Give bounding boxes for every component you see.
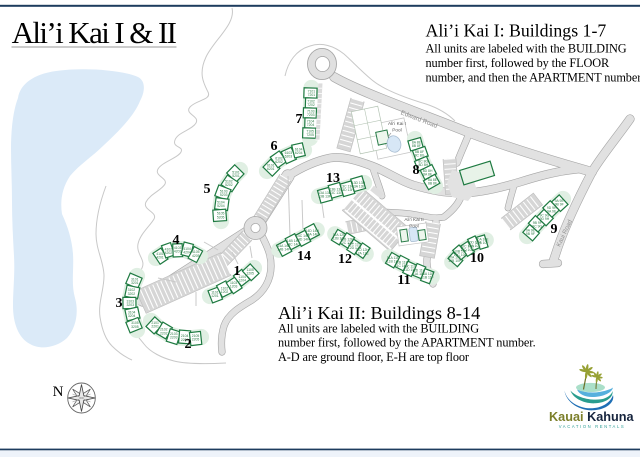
svg-text:Ali’i Kai I: Ali’i Kai I [388,121,406,126]
svg-text:number first, followed by the: number first, followed by the FLOOR [426,56,611,70]
svg-text:1204: 1204 [238,279,246,283]
svg-text:4204: 4204 [183,250,191,254]
svg-text:Ali’i Kai II: Ali’i Kai II [404,217,423,222]
svg-text:11B 11F: 11B 11F [421,275,433,279]
svg-text:1202: 1202 [221,290,229,294]
svg-text:1201: 1201 [211,294,219,298]
svg-text:10C 10G: 10C 10G [454,253,468,257]
svg-text:14: 14 [297,249,311,264]
svg-text:8: 8 [413,163,420,178]
svg-text:14C 14G: 14C 14G [286,243,300,247]
svg-text:14D 14H: 14D 14H [296,238,310,242]
svg-text:8B 8F: 8B 8F [412,144,421,148]
svg-text:13A 13E: 13A 13E [352,185,366,189]
svg-text:1: 1 [234,264,241,279]
svg-text:1203: 1203 [230,285,238,289]
svg-text:11: 11 [397,273,410,288]
svg-text:3204: 3204 [128,314,136,318]
svg-text:9B 9F: 9B 9F [526,232,535,236]
svg-text:A-D are ground floor, E-H are: A-D are ground floor, E-H are top floor [278,350,469,364]
svg-text:7203: 7203 [307,113,315,117]
svg-text:9A 9E: 9A 9E [547,210,557,214]
svg-text:14B 14F: 14B 14F [277,248,290,252]
svg-text:4203: 4203 [174,249,182,253]
svg-text:All units are labeled with the: All units are labeled with the BUILDING [278,322,479,336]
svg-text:9: 9 [551,222,558,237]
svg-text:2: 2 [185,337,192,352]
svg-text:Kauai Kahuna: Kauai Kahuna [549,410,635,424]
svg-text:Ali’i Kai I: Buildings 1-7: Ali’i Kai I: Buildings 1-7 [426,20,607,40]
svg-text:3205: 3205 [131,325,139,329]
svg-text:12A 12E: 12A 12E [356,251,370,255]
svg-text:6204: 6204 [295,151,303,155]
svg-text:6: 6 [271,139,278,154]
svg-text:1205: 1205 [246,272,254,276]
svg-text:9D 9H: 9D 9H [540,217,550,221]
svg-text:Ali’i Kai II: Buildings 8-14: Ali’i Kai II: Buildings 8-14 [278,303,480,323]
svg-text:8D 8H: 8D 8H [418,163,428,167]
svg-text:5203: 5203 [220,193,228,197]
svg-text:7201: 7201 [308,93,316,97]
svg-text:VACATION RENTALS: VACATION RENTALS [559,424,626,429]
svg-text:5205: 5205 [217,215,225,219]
svg-text:5204: 5204 [217,204,225,208]
svg-text:4205: 4205 [192,254,200,258]
svg-text:5202: 5202 [225,183,233,187]
svg-text:10B 10F: 10B 10F [476,241,489,245]
svg-text:5: 5 [204,182,211,197]
svg-text:5201: 5201 [232,174,240,178]
svg-text:6202: 6202 [275,160,283,164]
svg-text:13: 13 [326,171,340,186]
svg-text:2202: 2202 [160,331,168,335]
svg-text:7204: 7204 [307,123,315,127]
svg-text:number, and then the APARTMENT: number, and then the APARTMENT number [426,71,640,85]
svg-text:4: 4 [173,233,180,248]
svg-text:12: 12 [338,252,352,267]
svg-text:7205: 7205 [306,133,314,137]
svg-text:2201: 2201 [151,325,159,329]
svg-text:8B 8F: 8B 8F [428,182,437,186]
svg-text:3: 3 [116,296,123,311]
svg-text:9B 9F: 9B 9F [555,203,564,207]
svg-text:9C 9G: 9C 9G [532,224,542,228]
svg-text:All units are labeled with the: All units are labeled with the BUILDING [426,42,627,56]
svg-text:4202: 4202 [165,251,173,255]
svg-text:8C 8G: 8C 8G [415,154,425,158]
svg-text:14A 14E: 14A 14E [306,233,320,237]
svg-text:7202: 7202 [307,103,315,107]
svg-text:6201: 6201 [267,167,275,171]
svg-text:2203: 2203 [170,336,178,340]
svg-text:10B 10F: 10B 10F [448,259,461,263]
svg-text:3203: 3203 [127,303,135,307]
svg-text:number first, followed by the: number first, followed by the APARTMENT … [278,336,536,350]
svg-text:Ali’i Kai I & II: Ali’i Kai I & II [12,15,177,50]
svg-text:3201: 3201 [131,281,139,285]
svg-text:Pool: Pool [392,128,401,133]
svg-text:4201: 4201 [156,255,164,259]
svg-text:6203: 6203 [285,155,293,159]
svg-text:8A 8E: 8A 8E [423,173,433,177]
svg-text:7: 7 [296,112,303,127]
svg-text:3202: 3202 [128,292,136,296]
svg-text:Pool: Pool [409,224,418,229]
svg-text:10: 10 [470,251,484,266]
svg-text:2205: 2205 [192,338,200,342]
svg-text:N: N [53,384,64,400]
